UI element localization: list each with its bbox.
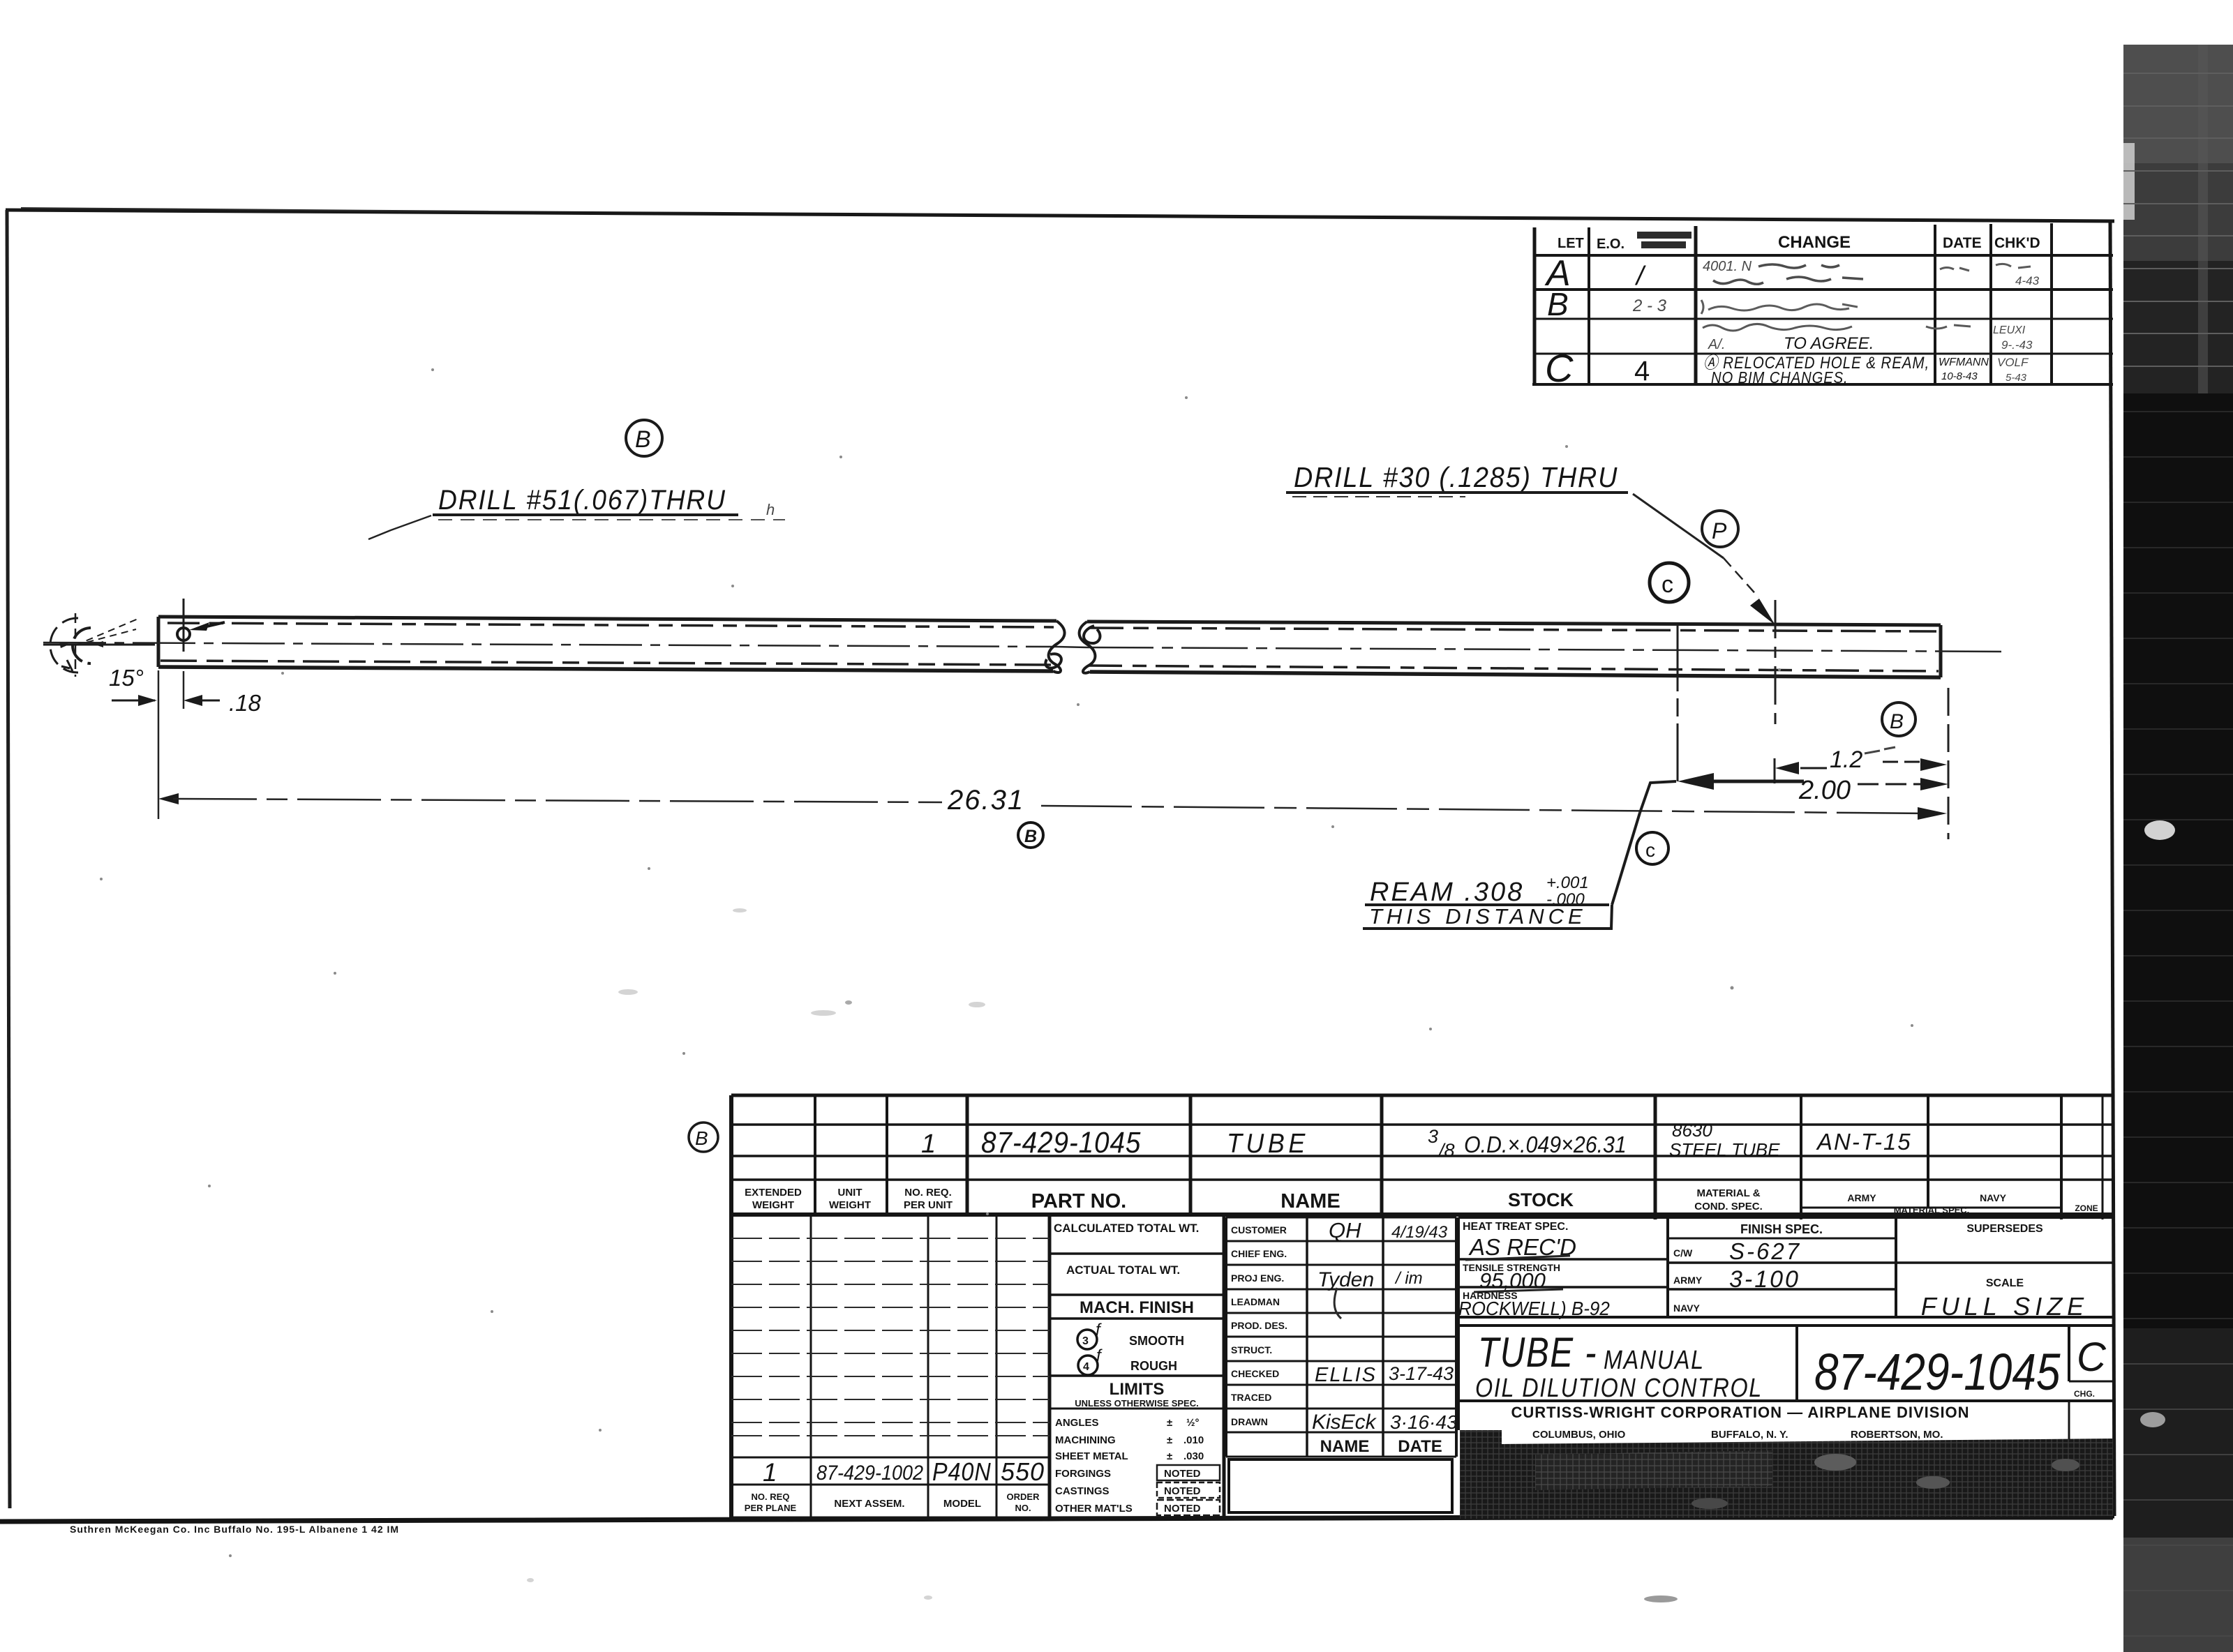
svg-text:NO BIM CHANGES.: NO BIM CHANGES. (1711, 368, 1848, 387)
svg-text:NAVY: NAVY (1673, 1302, 1701, 1314)
svg-text:PER UNIT: PER UNIT (904, 1199, 953, 1211)
svg-text:±: ± (1167, 1434, 1172, 1446)
svg-text:½°: ½° (1186, 1417, 1200, 1429)
svg-text:h: h (766, 501, 775, 518)
svg-text:TO AGREE.: TO AGREE. (1784, 334, 1874, 353)
svg-text:4-43: 4-43 (2015, 274, 2040, 287)
svg-text:ACTUAL TOTAL WT.: ACTUAL TOTAL WT. (1066, 1263, 1180, 1277)
svg-text:MATERIAL SPEC.: MATERIAL SPEC. (1894, 1205, 1970, 1215)
svg-text:CHK'D: CHK'D (1994, 235, 2040, 251)
svg-text:1: 1 (763, 1458, 777, 1487)
svg-text:ARMY: ARMY (1847, 1192, 1876, 1203)
svg-text:MATERIAL &: MATERIAL & (1696, 1187, 1760, 1199)
svg-text:CHIEF ENG.: CHIEF ENG. (1231, 1248, 1287, 1259)
svg-text:NAVY: NAVY (1980, 1192, 2007, 1203)
svg-text:REAM .308: REAM .308 (1370, 878, 1524, 907)
svg-text:1.2: 1.2 (1830, 746, 1862, 773)
svg-text:EXTENDED: EXTENDED (745, 1187, 802, 1199)
svg-text:STOCK: STOCK (1508, 1189, 1574, 1210)
svg-text:ROUGH: ROUGH (1130, 1359, 1177, 1373)
svg-text:NAME: NAME (1320, 1437, 1370, 1456)
svg-text:c: c (1645, 839, 1655, 861)
svg-text:E.O.: E.O. (1597, 236, 1625, 252)
svg-text:B: B (1890, 710, 1904, 733)
svg-text:B: B (635, 426, 651, 453)
svg-text:SMOOTH: SMOOTH (1129, 1334, 1184, 1348)
svg-text:OIL DILUTION CONTROL: OIL DILUTION CONTROL (1475, 1374, 1763, 1403)
svg-text:4001. N: 4001. N (1703, 259, 1752, 274)
svg-text:±: ± (1167, 1417, 1172, 1429)
svg-text:CUSTOMER: CUSTOMER (1231, 1224, 1287, 1236)
svg-text:MODEL: MODEL (943, 1498, 981, 1510)
svg-text:FINISH SPEC.: FINISH SPEC. (1740, 1222, 1823, 1236)
svg-text:.010: .010 (1183, 1434, 1204, 1446)
svg-text:CHANGE: CHANGE (1778, 233, 1851, 252)
svg-text:S-627: S-627 (1729, 1238, 1801, 1264)
svg-text:ROBERTSON, MO.: ROBERTSON, MO. (1851, 1429, 1943, 1441)
svg-text:3·16·43: 3·16·43 (1390, 1411, 1458, 1433)
svg-text:1: 1 (921, 1129, 936, 1159)
svg-text:/ im: / im (1394, 1269, 1423, 1288)
svg-text:PROJ ENG.: PROJ ENG. (1231, 1272, 1284, 1284)
svg-text:DRILL #30 (.1285) THRU: DRILL #30 (.1285) THRU (1294, 462, 1618, 494)
svg-text:FULL SIZE: FULL SIZE (1921, 1292, 2089, 1321)
svg-text:VOLF: VOLF (1997, 356, 2029, 369)
svg-text:LET: LET (1558, 236, 1584, 251)
svg-text:4/19/43: 4/19/43 (1391, 1223, 1448, 1242)
svg-text:ROCKWELL) B-92: ROCKWELL) B-92 (1458, 1298, 1610, 1319)
svg-text:UNLESS OTHERWISE SPEC.: UNLESS OTHERWISE SPEC. (1075, 1398, 1198, 1409)
svg-text:.18: .18 (229, 690, 262, 716)
svg-text:MANUAL: MANUAL (1604, 1346, 1705, 1375)
svg-text:ARMY: ARMY (1673, 1275, 1703, 1286)
svg-text:ELLIS: ELLIS (1315, 1364, 1377, 1386)
svg-text:5-43: 5-43 (2006, 372, 2027, 384)
svg-text:CASTINGS: CASTINGS (1055, 1485, 1110, 1497)
svg-text:SCALE: SCALE (1986, 1277, 2024, 1289)
svg-text:NAME: NAME (1280, 1190, 1340, 1212)
svg-text:PER PLANE: PER PLANE (745, 1503, 797, 1513)
svg-text:NOTED: NOTED (1164, 1503, 1201, 1515)
svg-text:TUBE: TUBE (1227, 1128, 1309, 1159)
svg-text:DATE: DATE (1398, 1437, 1442, 1456)
svg-text:THIS DISTANCE: THIS DISTANCE (1369, 904, 1587, 929)
svg-text:C: C (1545, 346, 1574, 390)
svg-text:P40N: P40N (932, 1458, 992, 1486)
svg-text:CHECKED: CHECKED (1231, 1368, 1279, 1379)
svg-text:HEAT TREAT SPEC.: HEAT TREAT SPEC. (1463, 1221, 1568, 1233)
svg-text:WEIGHT: WEIGHT (752, 1199, 794, 1211)
svg-text:2 - 3: 2 - 3 (1632, 296, 1667, 315)
svg-text:±: ± (1167, 1450, 1172, 1462)
svg-text:15°: 15° (109, 665, 144, 691)
svg-text:ANGLES: ANGLES (1055, 1417, 1099, 1429)
svg-text:NEXT ASSEM.: NEXT ASSEM. (834, 1498, 904, 1510)
svg-text:9-.-43: 9-.-43 (2001, 338, 2033, 352)
svg-text:CALCULATED TOTAL WT.: CALCULATED TOTAL WT. (1054, 1222, 1199, 1235)
svg-text:FORGINGS: FORGINGS (1055, 1468, 1111, 1480)
svg-text:SUPERSEDES: SUPERSEDES (1966, 1223, 2043, 1235)
svg-text:B: B (1024, 827, 1037, 846)
svg-text:8630: 8630 (1672, 1120, 1712, 1141)
svg-text:DATE: DATE (1943, 235, 1982, 251)
svg-text:87-429-1002: 87-429-1002 (816, 1462, 923, 1485)
svg-text:PART NO.: PART NO. (1031, 1190, 1126, 1212)
svg-text:550: 550 (1001, 1457, 1045, 1486)
svg-text:87-429-1045: 87-429-1045 (981, 1125, 1141, 1159)
svg-text:4: 4 (1083, 1361, 1089, 1373)
svg-text:STRUCT.: STRUCT. (1231, 1344, 1272, 1356)
svg-text:CHG.: CHG. (2074, 1389, 2095, 1399)
svg-text:KisEck: KisEck (1312, 1411, 1377, 1434)
svg-text:C/W: C/W (1673, 1247, 1693, 1259)
svg-text:LIMITS: LIMITS (1110, 1380, 1165, 1399)
svg-text:Tyden: Tyden (1317, 1268, 1374, 1291)
svg-text:WFMANN: WFMANN (1939, 356, 1989, 368)
svg-text:DRAWN: DRAWN (1231, 1416, 1268, 1427)
svg-text:NOTED: NOTED (1164, 1468, 1201, 1480)
svg-text:A/.: A/. (1708, 337, 1725, 352)
svg-text:LEADMAN: LEADMAN (1231, 1296, 1280, 1307)
svg-text:MACHINING: MACHINING (1055, 1434, 1116, 1446)
svg-text:26.31: 26.31 (947, 785, 1024, 816)
svg-text:B: B (1547, 286, 1569, 322)
svg-text:TRACED: TRACED (1231, 1392, 1271, 1403)
svg-text:QH: QH (1329, 1218, 1361, 1242)
svg-text:OTHER MAT'LS: OTHER MAT'LS (1055, 1503, 1133, 1515)
svg-text:TUBE -: TUBE - (1478, 1328, 1597, 1376)
svg-text:ZONE: ZONE (2075, 1203, 2098, 1213)
svg-text:3-17-43: 3-17-43 (1389, 1363, 1454, 1384)
svg-text:C: C (2077, 1335, 2107, 1380)
svg-text:.030: .030 (1183, 1450, 1204, 1462)
svg-text:3: 3 (1428, 1126, 1438, 1147)
svg-text:3: 3 (1082, 1335, 1089, 1347)
svg-text:NO.: NO. (1015, 1503, 1031, 1513)
svg-text:COLUMBUS, OHIO: COLUMBUS, OHIO (1532, 1429, 1626, 1441)
svg-text:10-8-43: 10-8-43 (1941, 370, 1978, 382)
svg-text:O.D.×.049×26.31: O.D.×.049×26.31 (1464, 1132, 1627, 1157)
svg-text:2.00: 2.00 (1798, 776, 1851, 805)
svg-text:NOTED: NOTED (1164, 1485, 1201, 1497)
svg-text:PROD. DES.: PROD. DES. (1231, 1320, 1287, 1331)
svg-text:B: B (695, 1127, 708, 1149)
svg-text:c: c (1661, 571, 1673, 598)
svg-text:CURTISS-WRIGHT CORPORATION — A: CURTISS-WRIGHT CORPORATION — AIRPLANE DI… (1511, 1404, 1969, 1421)
svg-text:WEIGHT: WEIGHT (829, 1199, 871, 1211)
svg-text:SHEET METAL: SHEET METAL (1055, 1450, 1128, 1462)
svg-text:3-100: 3-100 (1729, 1266, 1800, 1293)
svg-text:MACH. FINISH: MACH. FINISH (1080, 1298, 1194, 1317)
svg-text:UNIT: UNIT (838, 1187, 862, 1199)
svg-text:AN-T-15: AN-T-15 (1816, 1129, 1912, 1155)
svg-text:4: 4 (1634, 356, 1650, 386)
svg-text:DRILL #51(.067)THRU: DRILL #51(.067)THRU (438, 485, 726, 516)
svg-text:STEEL TUBE: STEEL TUBE (1669, 1139, 1780, 1160)
svg-text:NO. REQ.: NO. REQ. (904, 1187, 952, 1199)
svg-text:/8: /8 (1437, 1140, 1455, 1161)
svg-text:NO. REQ: NO. REQ (752, 1492, 790, 1502)
svg-text:87-429-1045: 87-429-1045 (1814, 1344, 2061, 1401)
svg-text:ORDER: ORDER (1007, 1492, 1040, 1502)
svg-text:Suthren McKeegan Co. Inc Bu: Suthren McKeegan Co. Inc Buffalo No. 195… (70, 1524, 399, 1535)
svg-text:P: P (1712, 518, 1727, 543)
svg-text:COND. SPEC.: COND. SPEC. (1694, 1201, 1763, 1212)
svg-text:+.001: +.001 (1546, 873, 1589, 892)
svg-text:LEUXI: LEUXI (1993, 324, 2026, 336)
svg-text:BUFFALO, N. Y.: BUFFALO, N. Y. (1711, 1429, 1788, 1441)
